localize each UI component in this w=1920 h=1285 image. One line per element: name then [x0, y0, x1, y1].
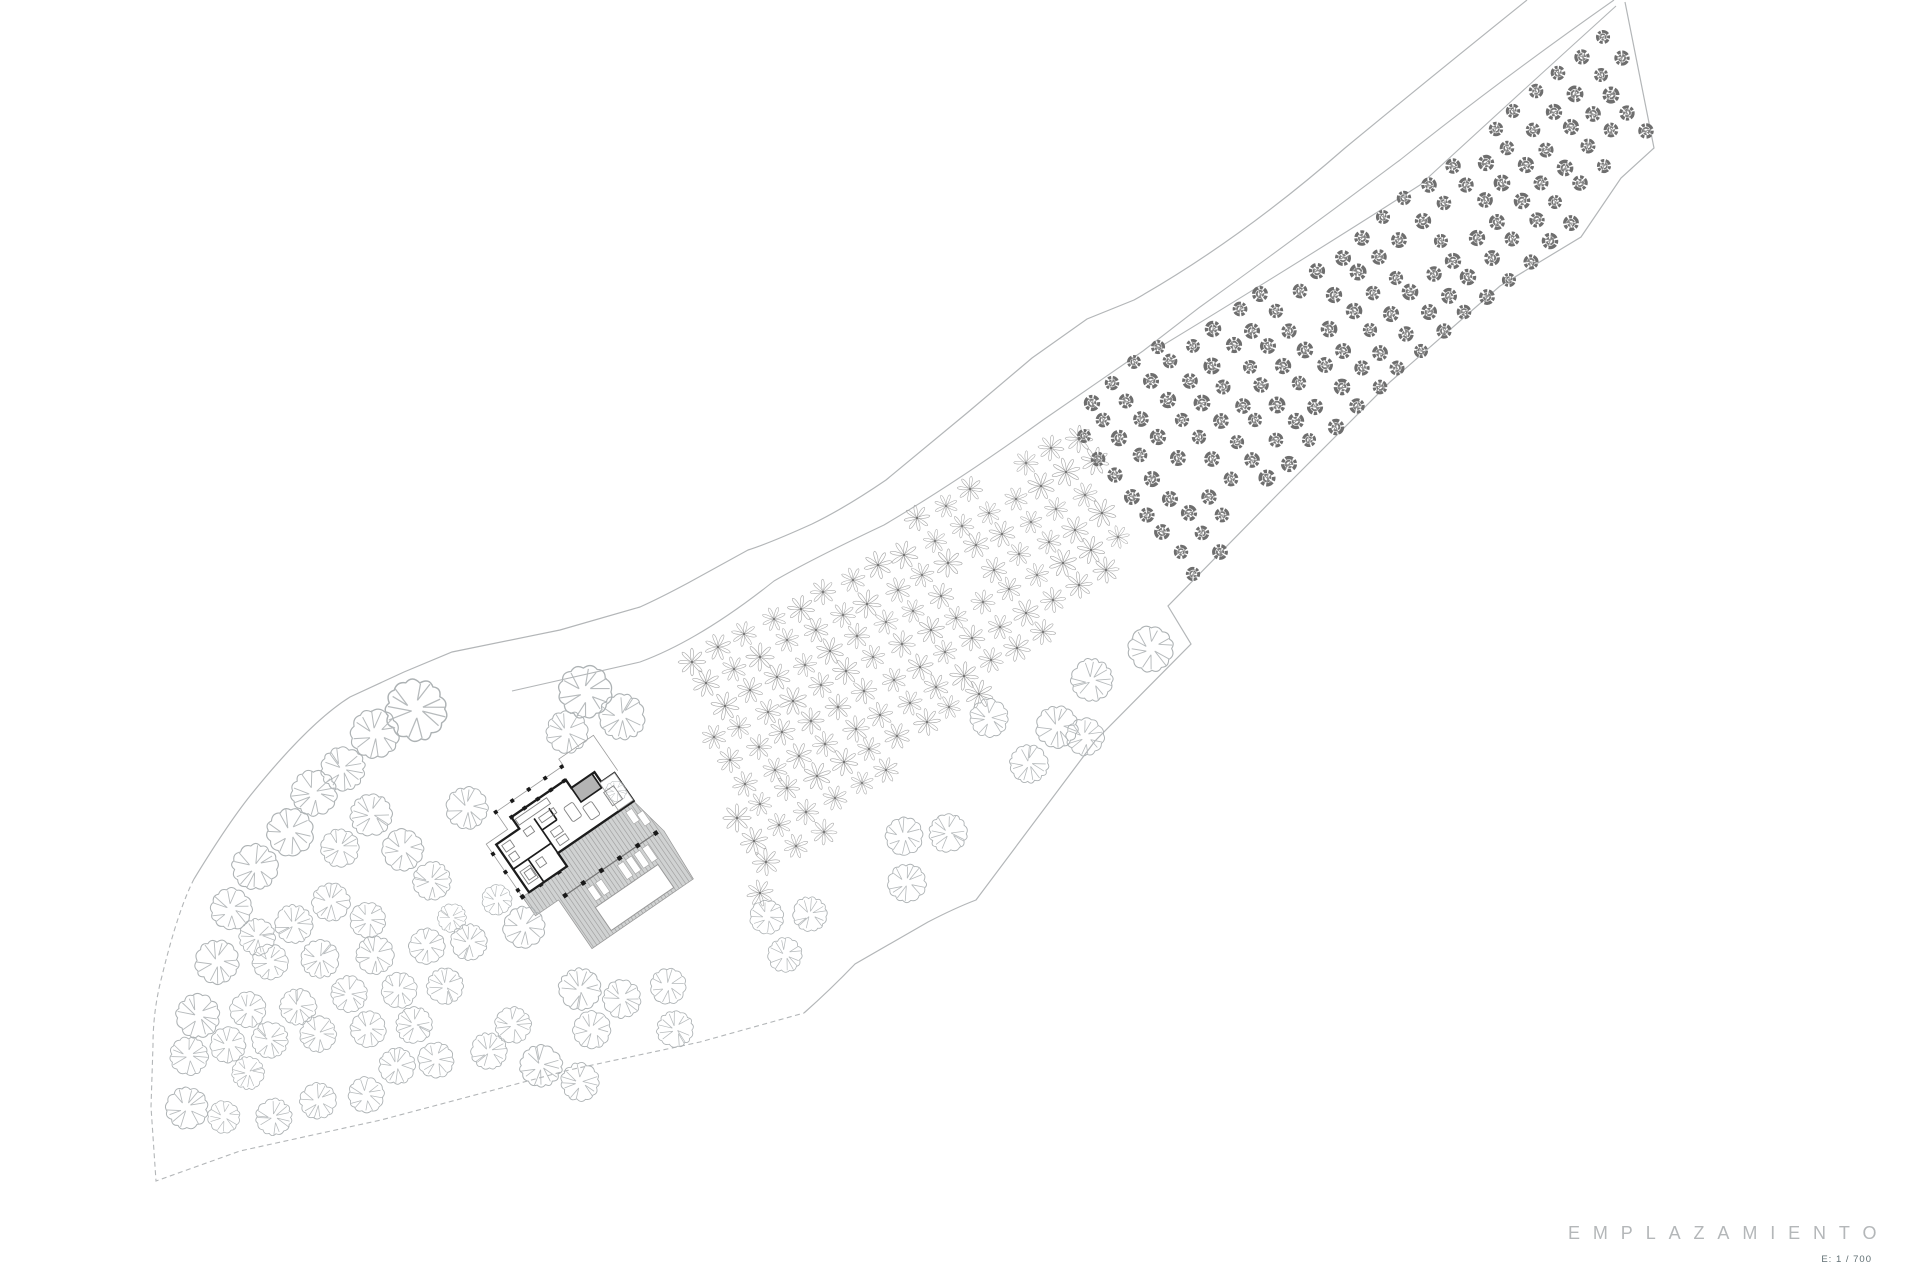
svg-text:E: 1 / 700: E: 1 / 700: [1821, 1254, 1872, 1265]
svg-text:EMPLAZAMIENTO: EMPLAZAMIENTO: [1568, 1223, 1889, 1243]
